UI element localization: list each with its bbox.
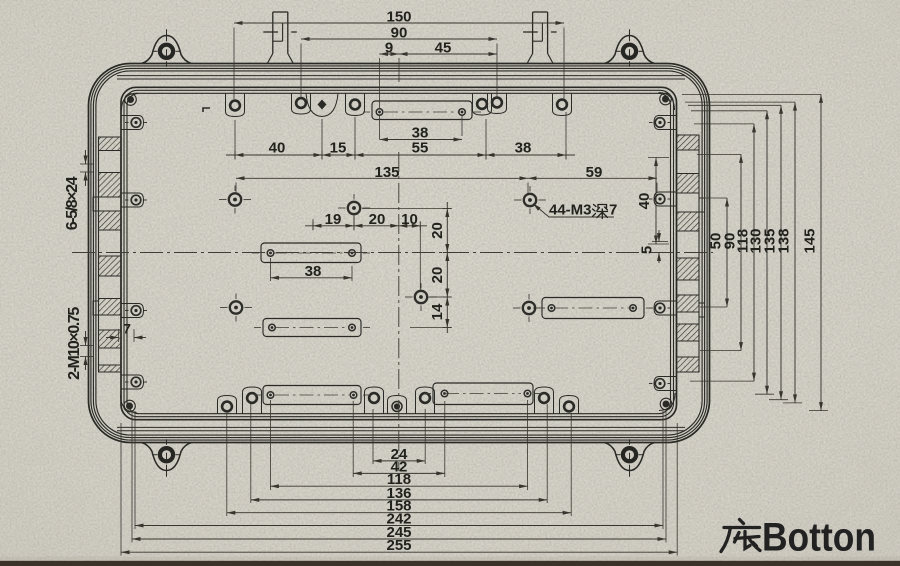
svg-text:40: 40: [636, 193, 653, 210]
svg-text:7: 7: [123, 321, 131, 337]
svg-text:44-M3: 44-M3: [549, 202, 592, 219]
svg-text:7: 7: [609, 202, 617, 219]
svg-text:19: 19: [325, 211, 342, 228]
svg-text:135: 135: [374, 164, 399, 181]
svg-text:38: 38: [412, 125, 429, 142]
svg-text:6-5/8×24: 6-5/8×24: [64, 176, 81, 230]
svg-text:59: 59: [586, 164, 603, 181]
svg-text:9: 9: [385, 39, 393, 56]
svg-text:20: 20: [369, 211, 386, 228]
svg-text:255: 255: [386, 537, 411, 554]
svg-text:38: 38: [515, 140, 532, 157]
svg-text:145: 145: [802, 228, 819, 253]
svg-text:2-M10×0.75: 2-M10×0.75: [66, 307, 83, 380]
svg-text:20: 20: [429, 222, 446, 239]
svg-text:10: 10: [401, 211, 418, 228]
svg-text:20: 20: [429, 267, 446, 284]
svg-text:45: 45: [435, 39, 452, 56]
svg-text:14: 14: [429, 303, 446, 320]
svg-text:15: 15: [330, 140, 347, 157]
svg-text:40: 40: [269, 140, 286, 157]
svg-text:150: 150: [386, 8, 411, 25]
svg-text:55: 55: [412, 140, 429, 157]
svg-text:Botton: Botton: [762, 516, 876, 560]
svg-text:5: 5: [639, 246, 656, 254]
svg-text:38: 38: [305, 263, 322, 280]
svg-text:138: 138: [776, 228, 793, 253]
